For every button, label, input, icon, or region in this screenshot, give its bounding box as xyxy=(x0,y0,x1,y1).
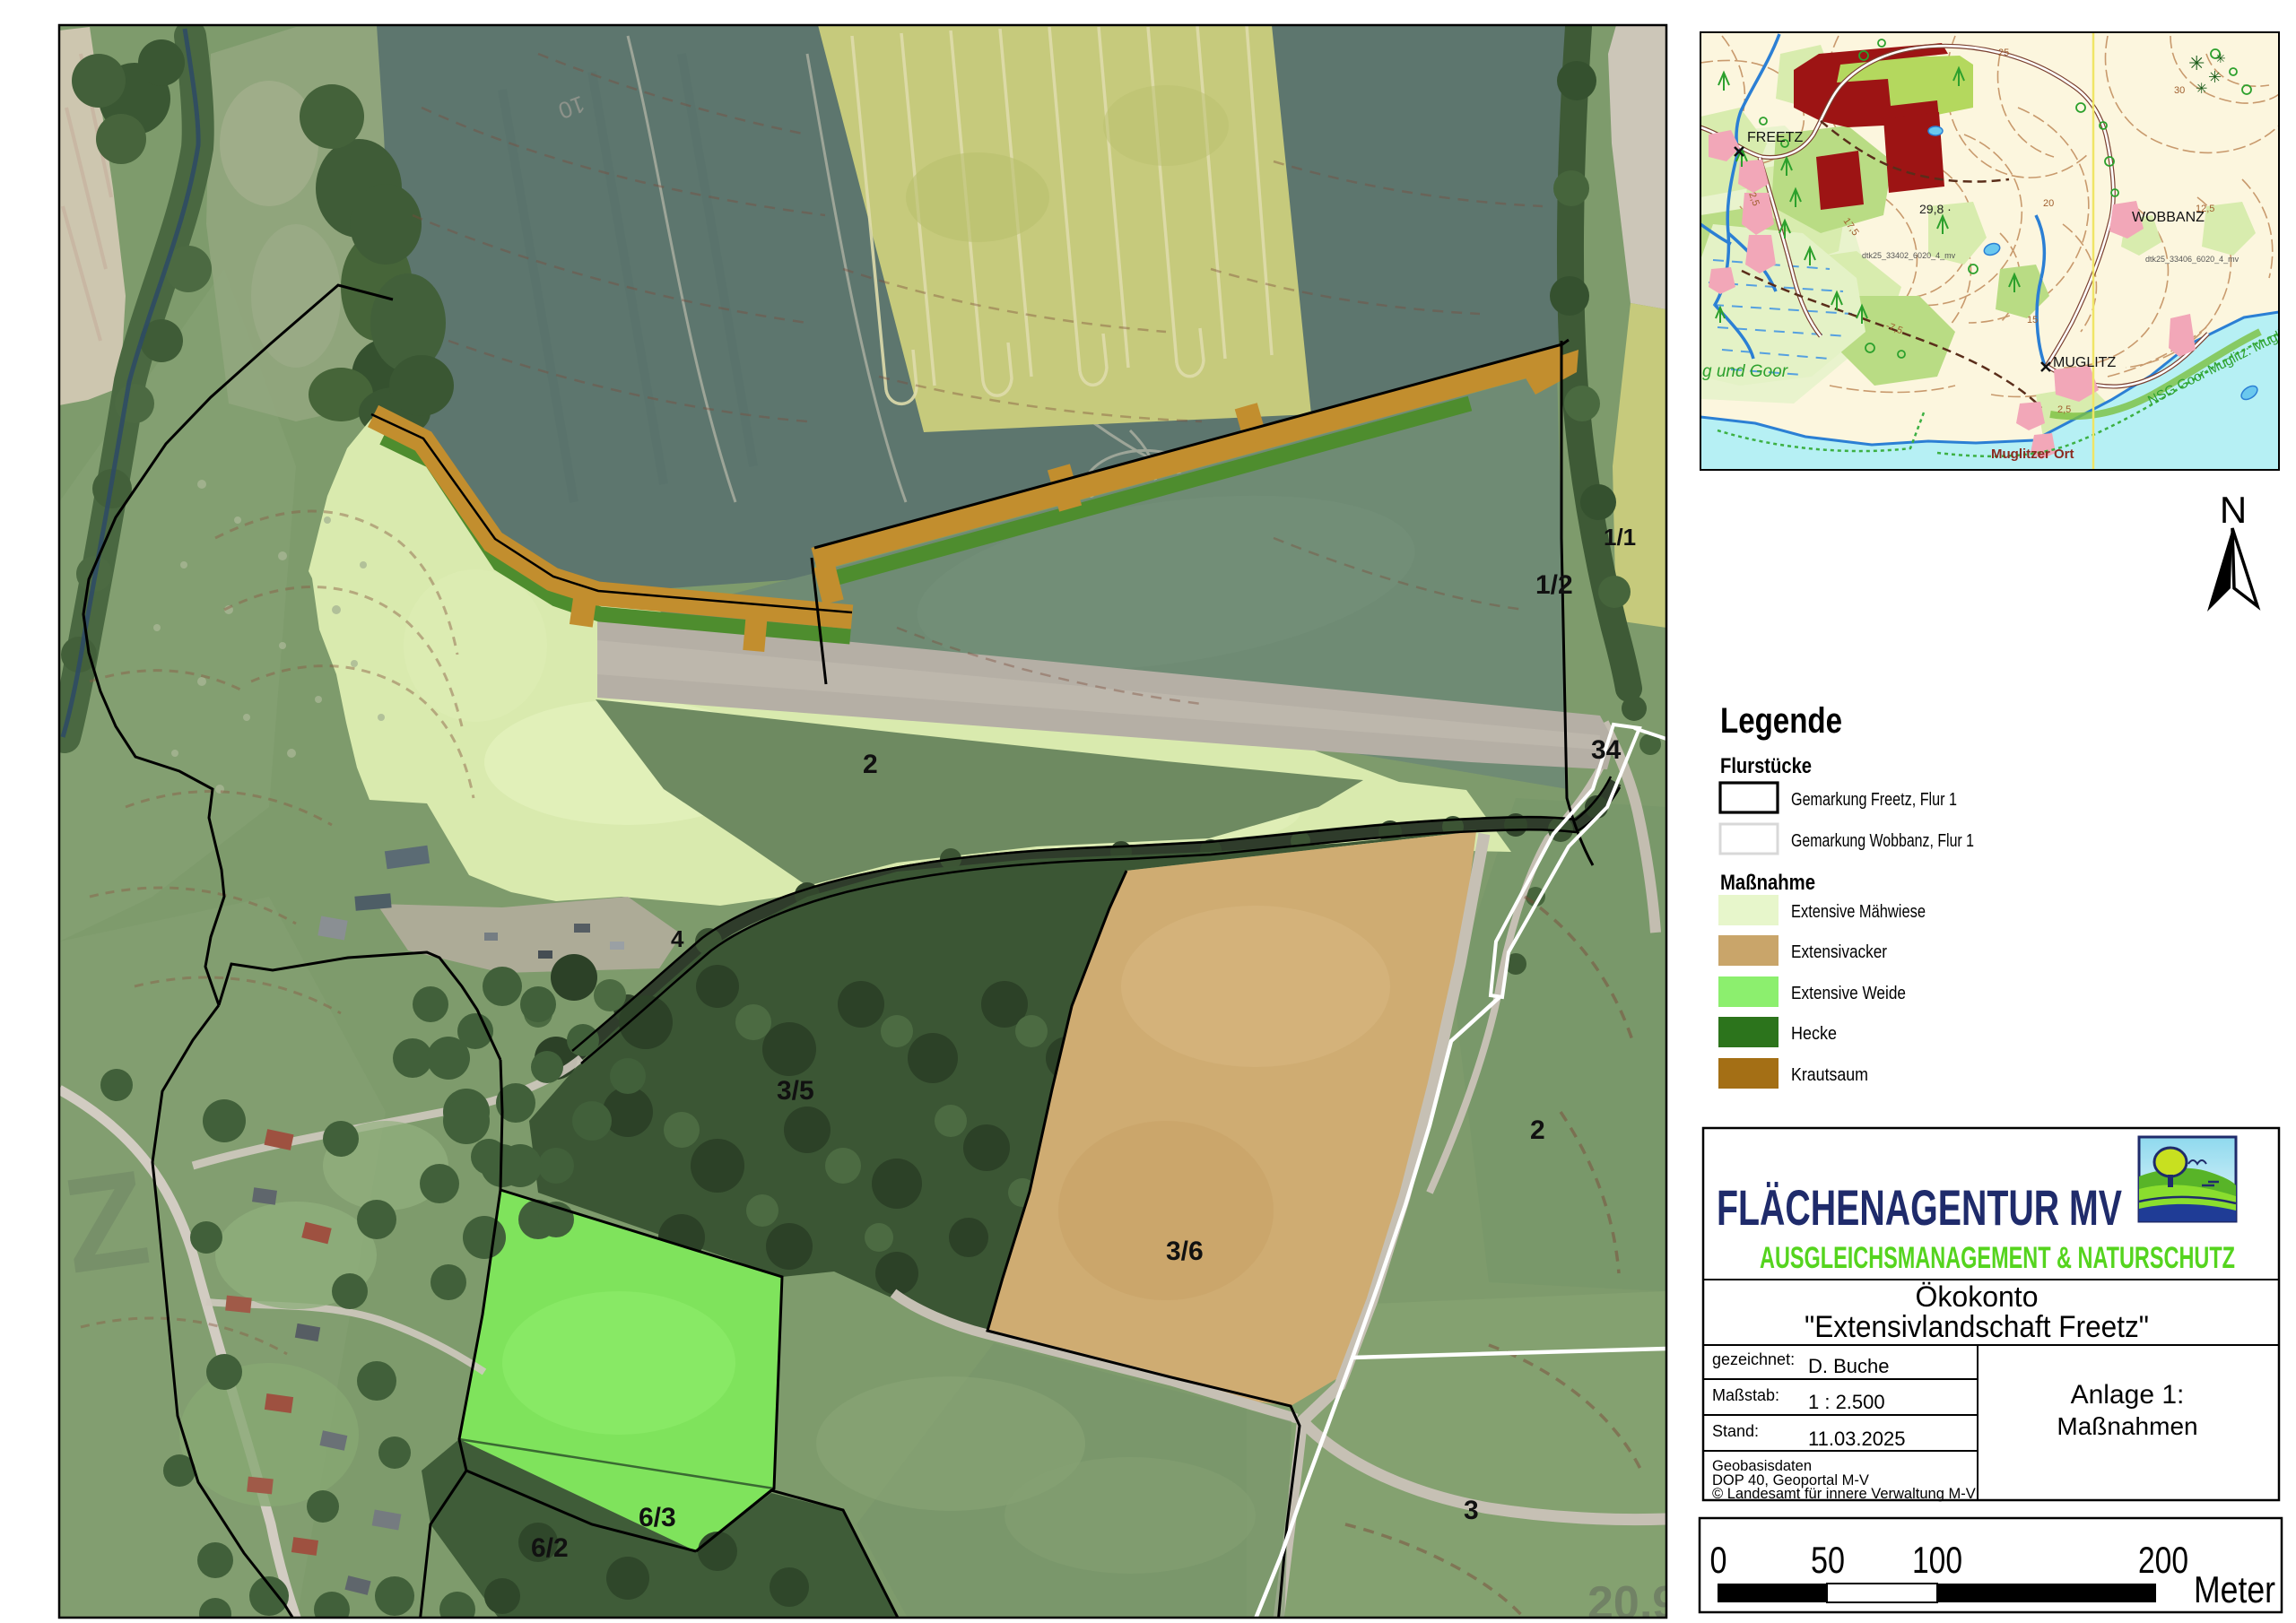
svg-text:gezeichnet:: gezeichnet: xyxy=(1712,1350,1795,1368)
svg-text:© Landesamt für innere Verwalt: © Landesamt für innere Verwaltung M-V xyxy=(1712,1486,1976,1502)
svg-text:"Extensivlandschaft Freetz": "Extensivlandschaft Freetz" xyxy=(1805,1310,2149,1344)
svg-text:34: 34 xyxy=(1591,735,1622,765)
svg-text:Muglitzer Ort: Muglitzer Ort xyxy=(1991,447,2074,462)
svg-text:Krautsaum: Krautsaum xyxy=(1791,1065,1868,1085)
svg-text:29,8 ·: 29,8 · xyxy=(1919,202,1952,216)
svg-text:✳: ✳ xyxy=(2188,52,2205,74)
svg-text:AUSGLEICHSMANAGEMENT & NATURSC: AUSGLEICHSMANAGEMENT & NATURSCHUTZ xyxy=(1760,1241,2235,1275)
svg-text:3/6: 3/6 xyxy=(1166,1237,1204,1266)
svg-text:Extensive Weide: Extensive Weide xyxy=(1791,984,1906,1003)
svg-text:Extensive Mähwiese: Extensive Mähwiese xyxy=(1791,902,1926,922)
svg-text:25: 25 xyxy=(1998,48,2009,58)
svg-text:N: N xyxy=(2220,489,2247,531)
svg-text:2,5: 2,5 xyxy=(2057,404,2071,415)
svg-text:Legende: Legende xyxy=(1720,701,1842,741)
svg-text:✳: ✳ xyxy=(2215,51,2226,65)
svg-text:11.03.2025: 11.03.2025 xyxy=(1808,1428,1905,1450)
svg-text:D. Buche: D. Buche xyxy=(1808,1355,1890,1377)
svg-text:dtk25_33402_6020_4_mv: dtk25_33402_6020_4_mv xyxy=(1862,251,1956,260)
svg-text:Maßnahme: Maßnahme xyxy=(1720,871,1815,895)
svg-text:6/2: 6/2 xyxy=(531,1533,569,1563)
svg-text:Gemarkung Wobbanz, Flur 1: Gemarkung Wobbanz, Flur 1 xyxy=(1791,831,1974,851)
svg-text:g und Goor: g und Goor xyxy=(1702,362,1788,381)
svg-text:6/3: 6/3 xyxy=(639,1503,676,1532)
svg-text:20: 20 xyxy=(2043,198,2054,209)
svg-text:1 : 2.500: 1 : 2.500 xyxy=(1808,1391,1885,1413)
svg-text:0: 0 xyxy=(1710,1539,1727,1581)
svg-text:✳: ✳ xyxy=(2208,68,2222,86)
svg-text:FLÄCHENAGENTUR MV: FLÄCHENAGENTUR MV xyxy=(1717,1179,2122,1236)
svg-text:Extensivacker: Extensivacker xyxy=(1791,942,1887,962)
svg-text:FREETZ: FREETZ xyxy=(1747,130,1803,145)
svg-text:30: 30 xyxy=(2174,85,2185,96)
svg-text:Maßstab:: Maßstab: xyxy=(1712,1386,1779,1404)
svg-text:2: 2 xyxy=(863,750,878,779)
svg-text:12,5: 12,5 xyxy=(2196,204,2214,214)
svg-text:20,9: 20,9 xyxy=(1587,1577,1678,1623)
svg-text:1/2: 1/2 xyxy=(1535,570,1573,600)
svg-text:15: 15 xyxy=(2027,315,2038,325)
svg-text:Hecke: Hecke xyxy=(1791,1024,1837,1044)
svg-text:3/5: 3/5 xyxy=(777,1076,814,1106)
svg-text:4: 4 xyxy=(671,925,684,952)
svg-text:WOBBANZ: WOBBANZ xyxy=(2132,210,2205,225)
svg-text:1/1: 1/1 xyxy=(1604,524,1636,551)
svg-text:Gemarkung Freetz, Flur 1: Gemarkung Freetz, Flur 1 xyxy=(1791,790,1957,810)
svg-text:50: 50 xyxy=(1811,1539,1845,1581)
svg-text:Flurstücke: Flurstücke xyxy=(1720,754,1812,778)
svg-text:Maßnahmen: Maßnahmen xyxy=(2057,1412,2197,1440)
svg-text:3: 3 xyxy=(1464,1496,1479,1525)
svg-text:Stand:: Stand: xyxy=(1712,1422,1759,1440)
svg-text:MUGLITZ: MUGLITZ xyxy=(2053,355,2116,370)
svg-text:2: 2 xyxy=(1530,1115,1545,1145)
svg-text:Meter: Meter xyxy=(2194,1568,2275,1610)
svg-text:200: 200 xyxy=(2138,1539,2188,1581)
svg-text:dtk25_33406_6020_4_mv: dtk25_33406_6020_4_mv xyxy=(2145,255,2239,264)
svg-text:Anlage 1:: Anlage 1: xyxy=(2071,1380,2185,1410)
svg-text:Ökokonto: Ökokonto xyxy=(1916,1280,2039,1313)
svg-text:100: 100 xyxy=(1912,1539,1962,1581)
svg-text:✳: ✳ xyxy=(2196,82,2207,97)
